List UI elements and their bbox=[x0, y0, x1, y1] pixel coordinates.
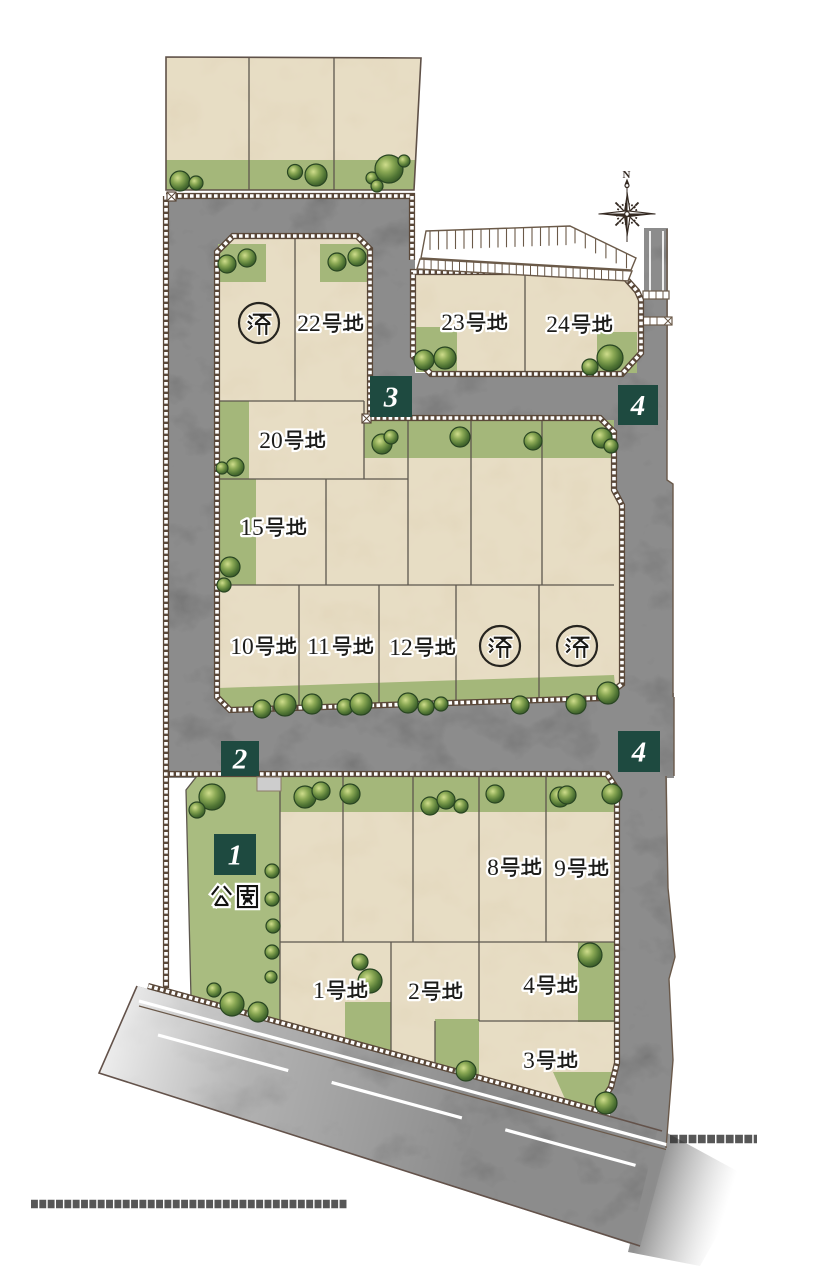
svg-text:20: 20 bbox=[259, 428, 283, 454]
svg-text:23: 23 bbox=[441, 310, 465, 336]
svg-text:11: 11 bbox=[307, 634, 330, 660]
svg-text:3: 3 bbox=[523, 1048, 535, 1074]
svg-text:12: 12 bbox=[389, 635, 413, 661]
svg-text:15: 15 bbox=[240, 515, 264, 541]
svg-text:N: N bbox=[623, 169, 631, 181]
svg-text:3: 3 bbox=[383, 382, 399, 414]
svg-text:24: 24 bbox=[546, 312, 570, 338]
svg-text:4: 4 bbox=[630, 390, 646, 422]
svg-text:2: 2 bbox=[232, 744, 248, 776]
svg-text:4: 4 bbox=[523, 973, 535, 999]
svg-text:22: 22 bbox=[297, 311, 321, 337]
svg-text:1: 1 bbox=[313, 978, 325, 1004]
svg-text:2: 2 bbox=[408, 979, 420, 1005]
svg-text:9: 9 bbox=[554, 856, 566, 882]
svg-text:4: 4 bbox=[631, 737, 647, 769]
svg-text:10: 10 bbox=[230, 634, 254, 660]
svg-text:1: 1 bbox=[228, 840, 243, 872]
svg-text:8: 8 bbox=[487, 855, 499, 881]
